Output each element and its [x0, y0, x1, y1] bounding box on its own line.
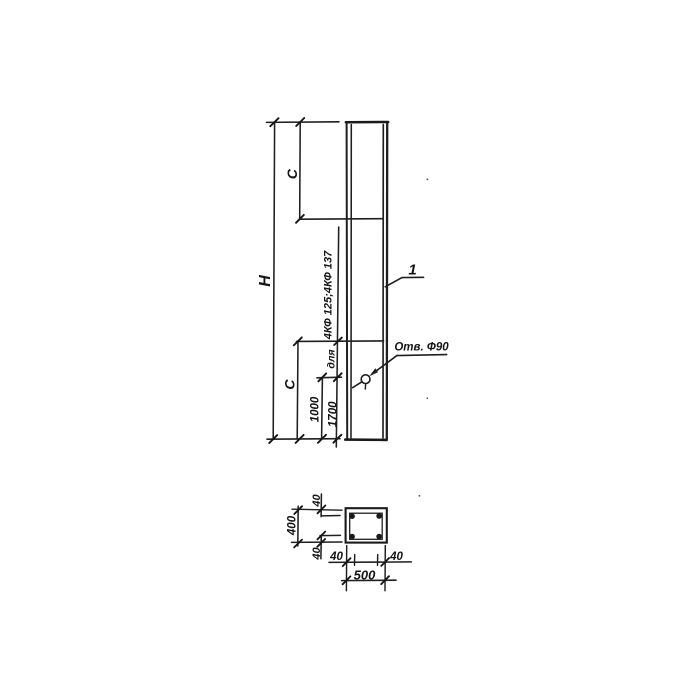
svg-text:40: 40 [311, 494, 323, 508]
svg-text:40: 40 [329, 551, 343, 563]
svg-text:4КФ 125;4КФ 137: 4КФ 125;4КФ 137 [323, 250, 335, 340]
svg-text:для: для [326, 349, 338, 368]
svg-text:1700: 1700 [327, 401, 339, 427]
svg-text:500: 500 [354, 568, 376, 583]
svg-text:H: H [257, 275, 274, 287]
svg-text:C: C [282, 379, 298, 390]
svg-text:1: 1 [408, 262, 416, 279]
svg-text:C: C [284, 168, 300, 179]
svg-text:40: 40 [389, 551, 403, 563]
svg-text:40: 40 [311, 547, 323, 561]
svg-text:400: 400 [287, 515, 299, 536]
svg-text:Отв. Ф90: Отв. Ф90 [394, 342, 449, 354]
svg-text:1000: 1000 [310, 396, 322, 422]
